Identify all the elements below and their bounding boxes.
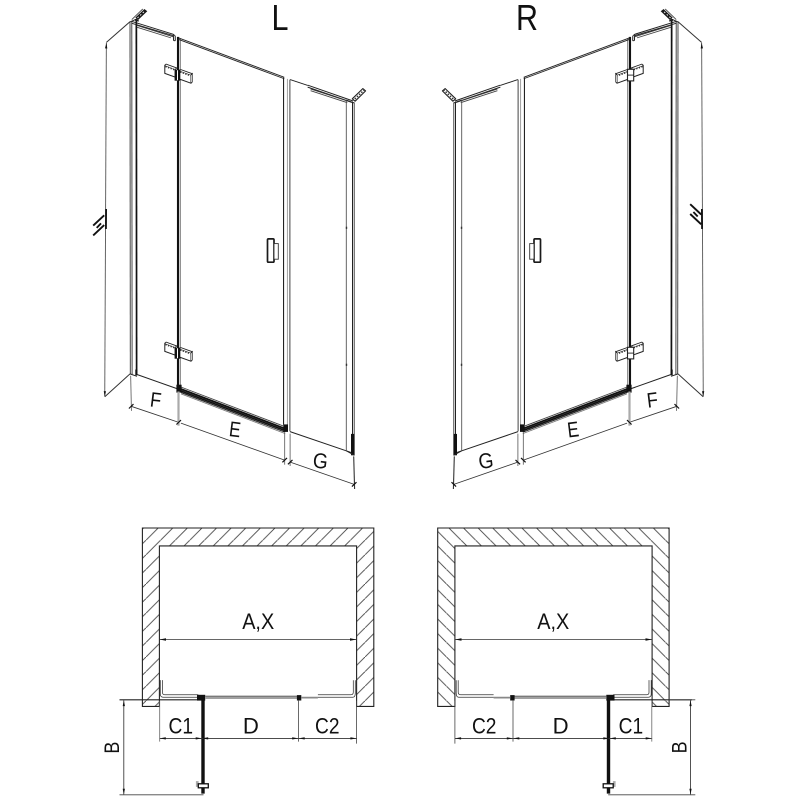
svg-text:C2: C2 (472, 713, 497, 738)
svg-text:F: F (149, 389, 163, 413)
svg-text:A,X: A,X (537, 609, 569, 634)
svg-text:E: E (228, 417, 242, 442)
svg-text:D: D (243, 714, 259, 739)
svg-text:G: G (311, 448, 329, 474)
svg-text:D: D (553, 714, 569, 739)
svg-text:F: F (646, 389, 660, 413)
svg-text:C1: C1 (619, 713, 644, 738)
svg-text:C1: C1 (169, 713, 194, 738)
svg-text:B: B (100, 742, 124, 754)
svg-text:E: E (566, 417, 580, 442)
svg-text:A,X: A,X (242, 609, 274, 634)
svg-text:C2: C2 (315, 713, 340, 738)
svg-text:L: L (272, 0, 289, 38)
svg-text:B: B (667, 741, 691, 753)
svg-text:R: R (516, 0, 538, 38)
svg-text:G: G (477, 448, 495, 474)
